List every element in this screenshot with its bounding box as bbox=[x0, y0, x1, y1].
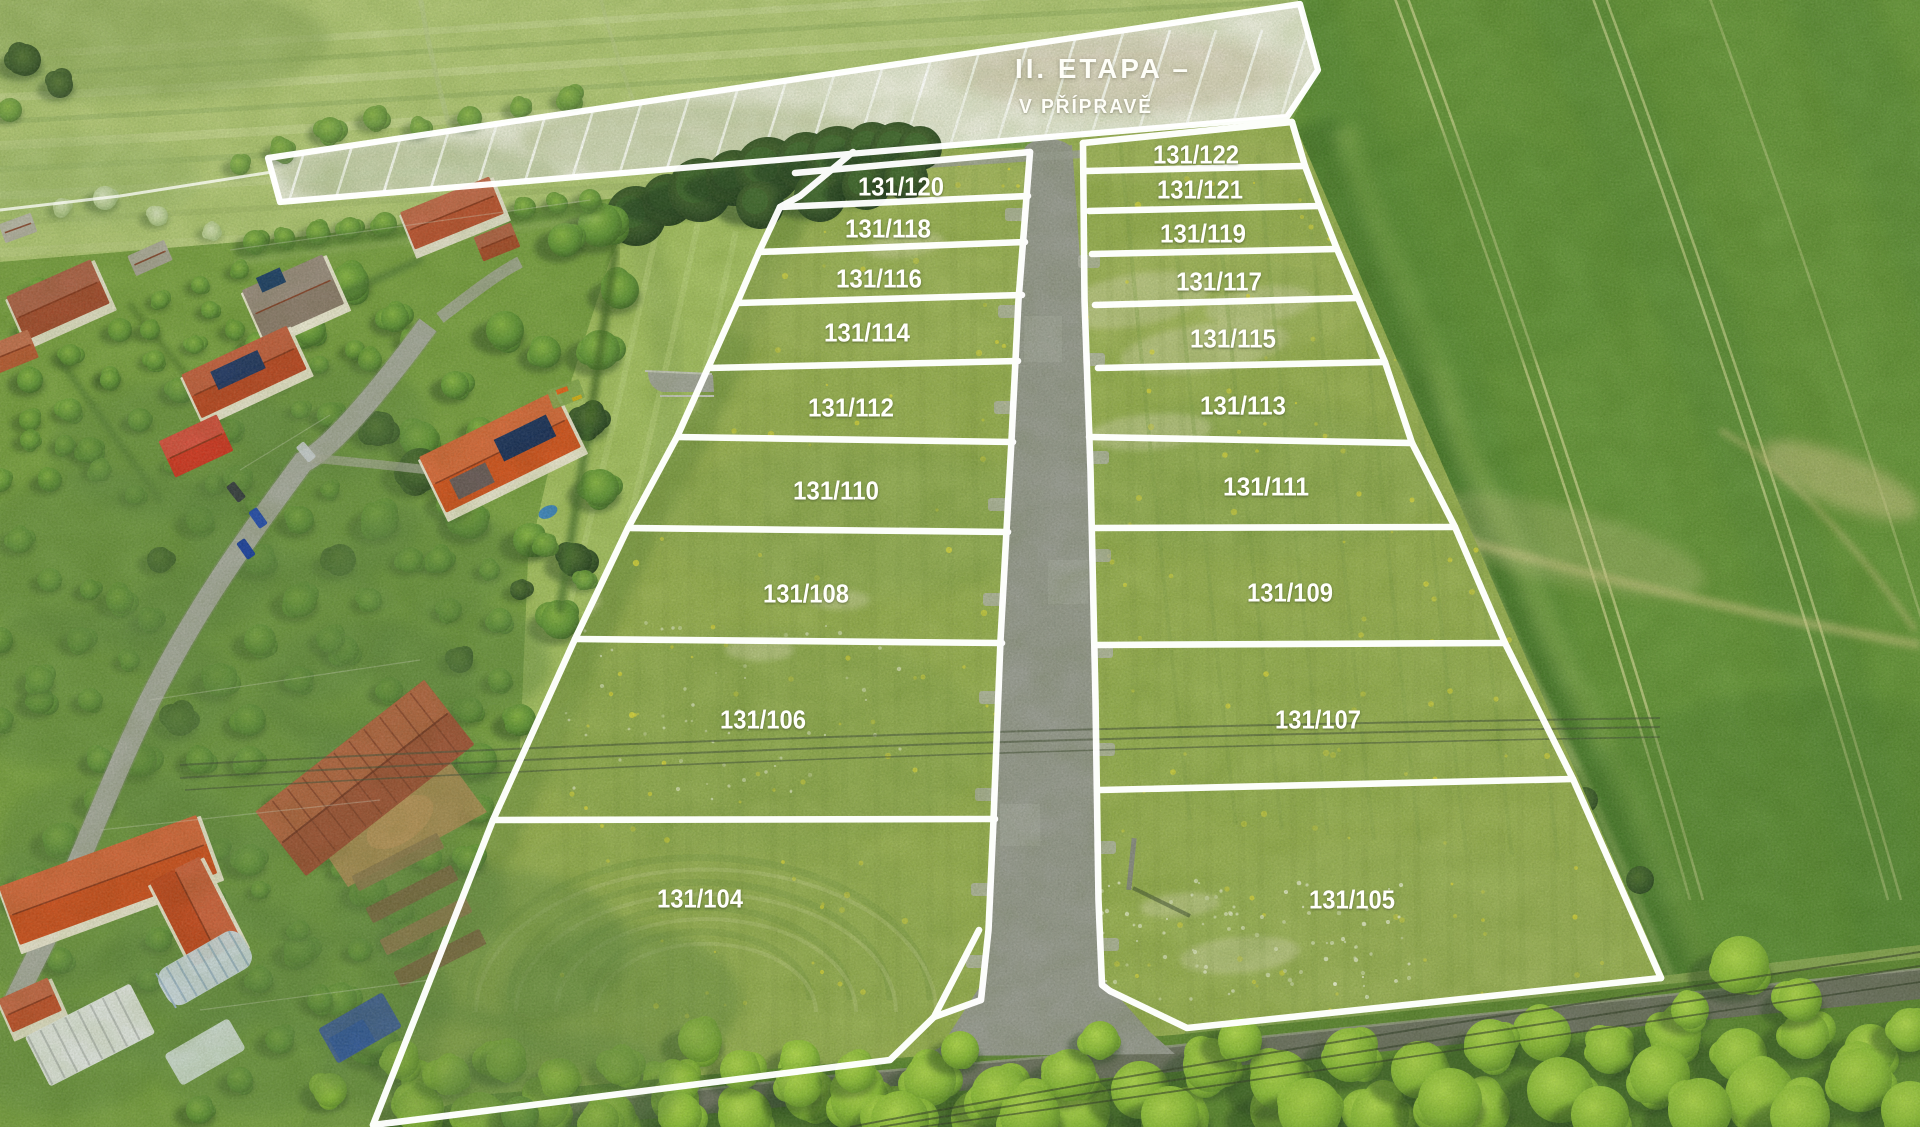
svg-text:131/104: 131/104 bbox=[657, 884, 743, 914]
svg-text:131/116: 131/116 bbox=[836, 264, 922, 294]
svg-text:131/105: 131/105 bbox=[1309, 885, 1395, 915]
svg-text:131/112: 131/112 bbox=[808, 393, 894, 423]
svg-text:131/122: 131/122 bbox=[1153, 140, 1239, 170]
svg-text:131/115: 131/115 bbox=[1190, 324, 1276, 354]
svg-text:131/109: 131/109 bbox=[1247, 578, 1333, 608]
svg-text:131/114: 131/114 bbox=[824, 318, 910, 348]
svg-text:131/117: 131/117 bbox=[1176, 267, 1262, 297]
svg-text:131/119: 131/119 bbox=[1160, 219, 1246, 249]
svg-text:131/106: 131/106 bbox=[720, 705, 806, 735]
svg-text:131/111: 131/111 bbox=[1223, 472, 1309, 502]
svg-text:131/107: 131/107 bbox=[1275, 705, 1361, 735]
svg-text:131/121: 131/121 bbox=[1157, 175, 1243, 205]
svg-text:131/118: 131/118 bbox=[845, 214, 931, 244]
svg-text:V PŘÍPRAVĚ: V PŘÍPRAVĚ bbox=[1019, 94, 1153, 118]
svg-text:II. ETAPA –: II. ETAPA – bbox=[1015, 53, 1191, 84]
svg-text:131/108: 131/108 bbox=[763, 579, 849, 609]
svg-text:131/113: 131/113 bbox=[1200, 391, 1286, 421]
svg-text:131/110: 131/110 bbox=[793, 476, 879, 506]
svg-text:131/120: 131/120 bbox=[858, 172, 944, 202]
